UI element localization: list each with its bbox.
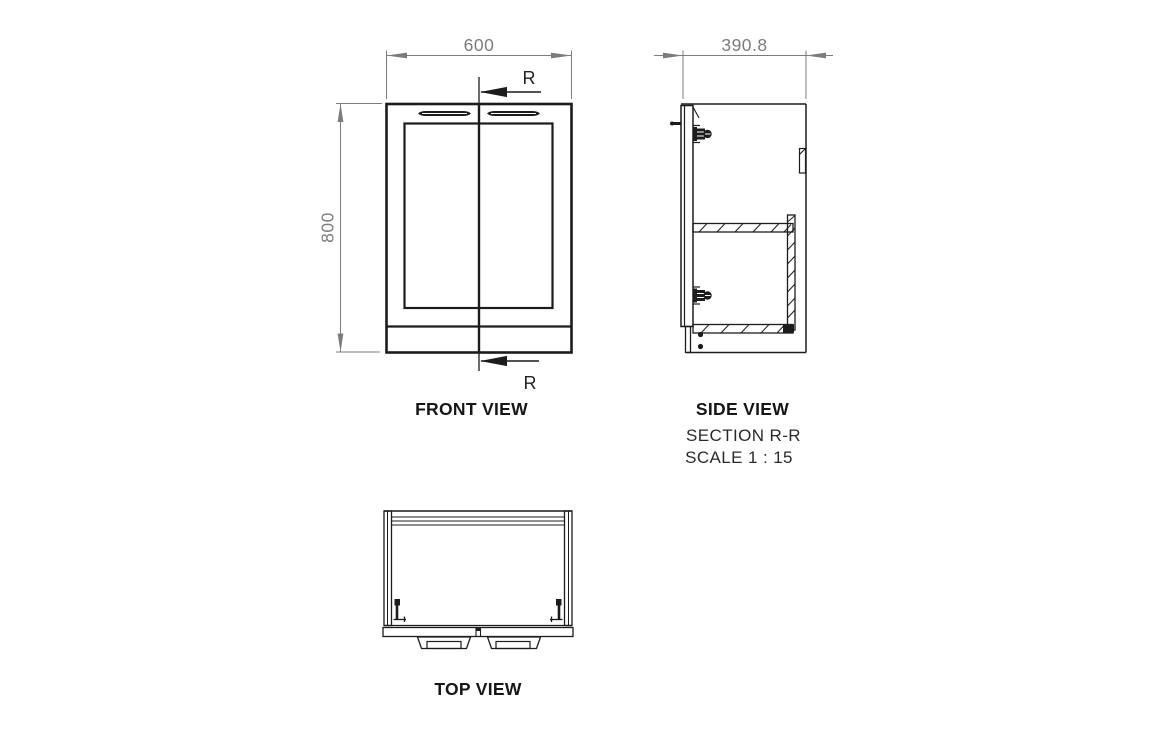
front-view-label: FRONT VIEW bbox=[415, 399, 528, 419]
top-view-label: TOP VIEW bbox=[434, 679, 522, 699]
side-hinge-top bbox=[693, 126, 712, 143]
engineering-drawing-canvas: R R 600 800 FRONT VIEW bbox=[0, 0, 1156, 742]
side-bottom-panel bbox=[693, 325, 793, 334]
front-right-handle bbox=[487, 111, 540, 116]
section-marker-top: R bbox=[523, 68, 536, 88]
front-left-handle bbox=[418, 111, 471, 116]
top-door-strip bbox=[383, 628, 573, 637]
section-arrow-bottom bbox=[480, 356, 507, 366]
front-view: R R 600 800 FRONT VIEW bbox=[318, 35, 572, 419]
top-right-side-panel bbox=[565, 511, 573, 626]
dimension-depth: 390.8 bbox=[654, 35, 833, 99]
section-arrow-top bbox=[480, 87, 507, 97]
side-view: 390.8 SIDE VIEW SECTION R-R SCALE 1 : 15 bbox=[654, 35, 833, 467]
dimension-height: 800 bbox=[318, 104, 383, 353]
side-view-section-label: SECTION R-R bbox=[686, 426, 801, 445]
top-left-handle bbox=[418, 637, 471, 649]
side-back-bracket bbox=[800, 149, 806, 174]
side-view-scale-label: SCALE 1 : 15 bbox=[685, 448, 793, 467]
section-marker-bottom: R bbox=[524, 373, 537, 393]
top-back-rails bbox=[392, 517, 565, 525]
dimension-height-value: 800 bbox=[318, 212, 338, 243]
dimension-width-value: 600 bbox=[464, 35, 495, 55]
top-right-handle bbox=[488, 637, 541, 649]
side-plinth-leg bbox=[686, 327, 704, 353]
side-screw-dot-1 bbox=[698, 332, 703, 337]
dimension-depth-value: 390.8 bbox=[721, 35, 767, 55]
top-left-side-panel bbox=[384, 511, 392, 626]
side-screw-dot-2 bbox=[698, 344, 703, 349]
side-shelf bbox=[693, 224, 793, 233]
top-view: TOP VIEW bbox=[383, 511, 573, 699]
side-door-bumper bbox=[670, 122, 681, 126]
top-door-gap-detail bbox=[476, 628, 482, 632]
side-hinge-bottom bbox=[693, 287, 712, 304]
top-right-hinge bbox=[550, 599, 563, 622]
top-left-hinge bbox=[394, 599, 407, 622]
section-line-r: R R bbox=[479, 68, 541, 393]
side-view-label: SIDE VIEW bbox=[696, 399, 789, 419]
